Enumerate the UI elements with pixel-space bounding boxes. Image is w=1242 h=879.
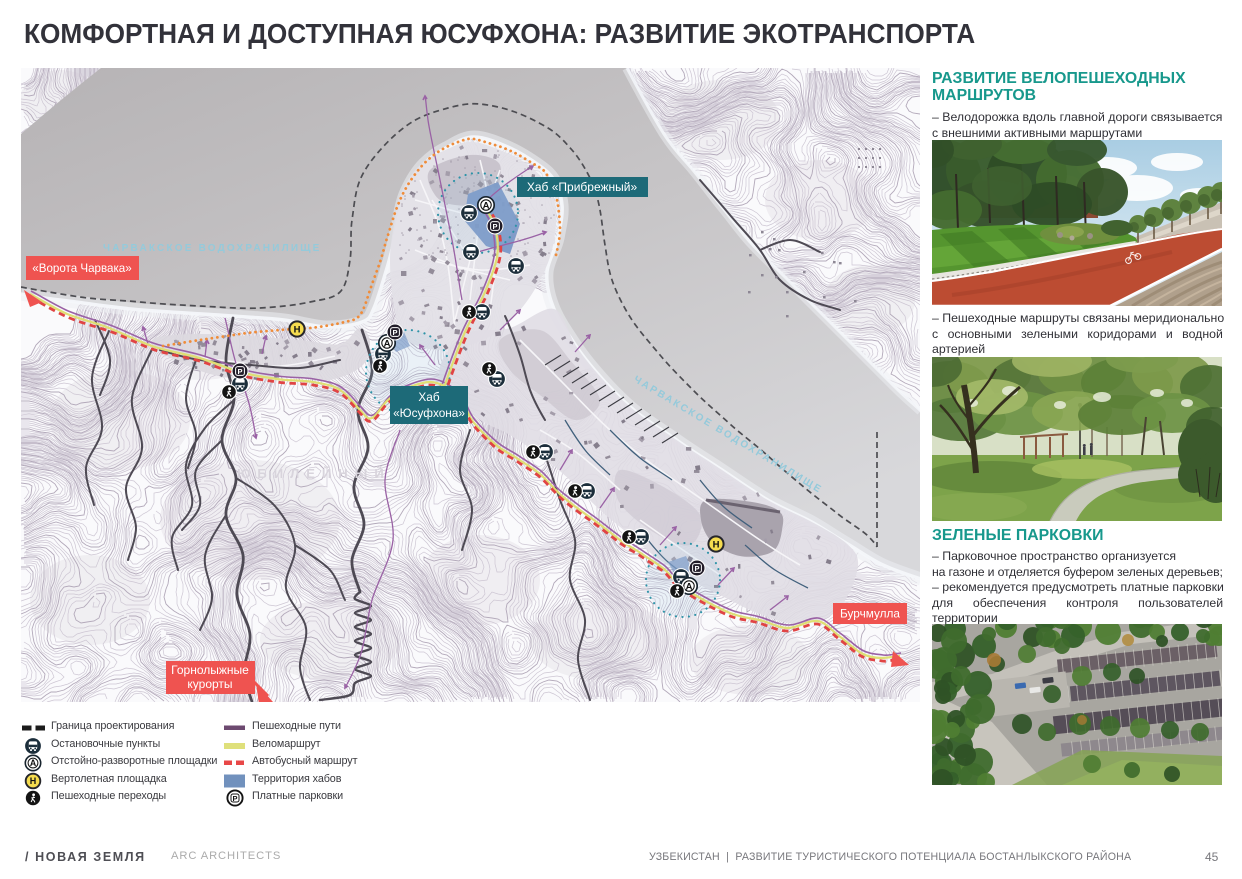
svg-text:курорты: курорты: [187, 677, 232, 691]
svg-text:A: A: [483, 200, 490, 211]
svg-text:A: A: [384, 338, 391, 349]
svg-text:ЧАРВАКСКОЕ ВОДОХРАНИЛИЩЕ: ЧАРВАКСКОЕ ВОДОХРАНИЛИЩЕ: [103, 243, 321, 254]
svg-text:H: H: [713, 539, 720, 550]
svg-text:Хаб: Хаб: [418, 390, 439, 404]
svg-text:P: P: [232, 794, 237, 803]
svg-text:«Юсуфхона»: «Юсуфхона»: [393, 406, 465, 420]
svg-text:«Ворота Чарвака»: «Ворота Чарвака»: [32, 262, 131, 275]
svg-text:ЮБИЛЕЙНЫЙ: ЮБИЛЕЙНЫЙ: [237, 466, 391, 481]
svg-text:A: A: [30, 758, 37, 768]
svg-text:Горнолыжные: Горнолыжные: [171, 663, 249, 677]
svg-text:P: P: [237, 367, 242, 376]
svg-text:P: P: [492, 222, 497, 231]
svg-text:H: H: [30, 776, 37, 786]
svg-text:A: A: [686, 581, 693, 592]
svg-text:P: P: [392, 328, 397, 337]
svg-text:H: H: [294, 324, 301, 335]
svg-text:P: P: [694, 564, 699, 573]
svg-text:Хаб «Прибрежный»: Хаб «Прибрежный»: [527, 180, 638, 194]
svg-text:Бурчмулла: Бурчмулла: [840, 607, 900, 621]
